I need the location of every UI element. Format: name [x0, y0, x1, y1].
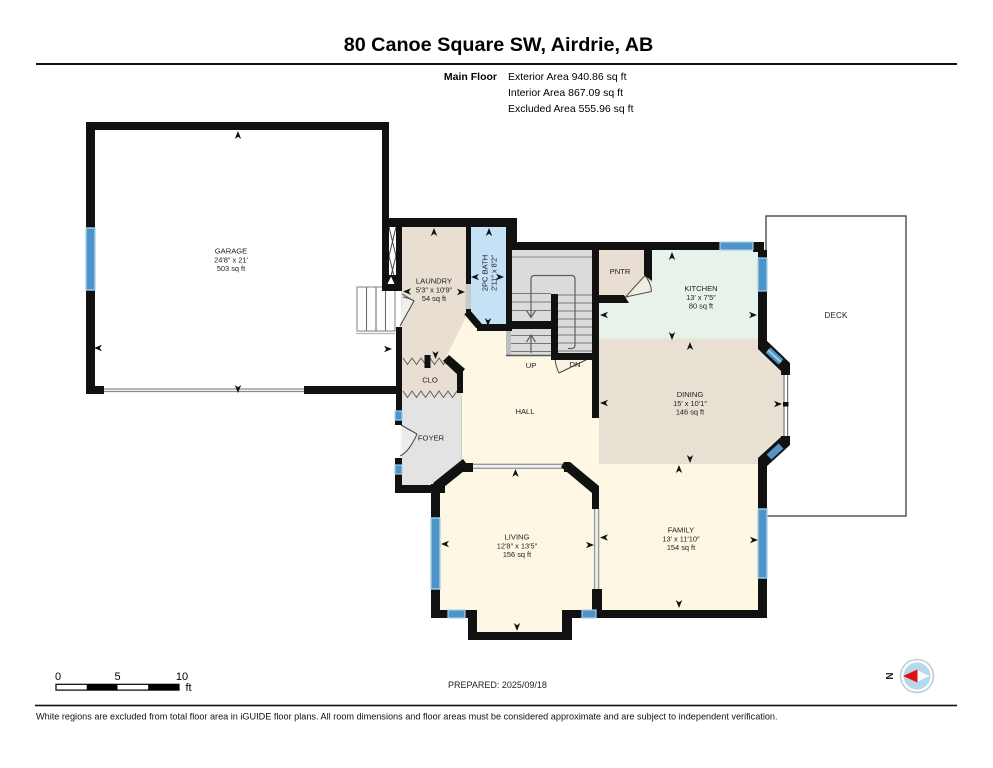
svg-text:146 sq ft: 146 sq ft: [676, 408, 704, 417]
svg-text:LIVING: LIVING: [505, 533, 530, 542]
svg-text:FOYER: FOYER: [418, 434, 445, 443]
svg-text:156 sq ft: 156 sq ft: [503, 550, 531, 559]
svg-text:KITCHEN: KITCHEN: [684, 284, 717, 293]
svg-text:GARAGE: GARAGE: [215, 247, 248, 256]
svg-text:2′11″ x 8′2″: 2′11″ x 8′2″: [490, 255, 499, 291]
svg-text:Excluded Area 555.96 sq ft: Excluded Area 555.96 sq ft: [508, 103, 634, 115]
svg-text:80 sq ft: 80 sq ft: [689, 302, 713, 311]
svg-text:Interior Area 867.09 sq ft: Interior Area 867.09 sq ft: [508, 87, 623, 99]
svg-text:PNTR: PNTR: [610, 267, 631, 276]
svg-text:DECK: DECK: [824, 311, 847, 320]
svg-text:Exterior Area 940.86 sq ft: Exterior Area 940.86 sq ft: [508, 71, 627, 83]
svg-text:80 Canoe Square SW, Airdrie, A: 80 Canoe Square SW, Airdrie, AB: [344, 34, 654, 56]
svg-text:N: N: [885, 672, 896, 679]
svg-text:FAMILY: FAMILY: [668, 526, 694, 535]
svg-text:UP: UP: [526, 361, 537, 370]
svg-text:503 sq ft: 503 sq ft: [217, 264, 245, 273]
svg-text:DN: DN: [570, 360, 581, 369]
svg-text:5: 5: [114, 671, 120, 683]
svg-text:HALL: HALL: [516, 407, 535, 416]
svg-text:White regions are excluded fro: White regions are excluded from total fl…: [36, 712, 778, 722]
svg-text:Main Floor: Main Floor: [444, 71, 497, 83]
svg-text:54 sq ft: 54 sq ft: [422, 294, 446, 303]
svg-text:0: 0: [55, 671, 61, 683]
svg-text:CLO: CLO: [422, 376, 438, 385]
svg-text:ft: ft: [186, 682, 192, 694]
svg-text:LAUNDRY: LAUNDRY: [416, 277, 452, 286]
svg-text:DINING: DINING: [677, 390, 704, 399]
svg-text:2PC BATH: 2PC BATH: [481, 255, 490, 292]
svg-text:PREPARED: 2025/09/18: PREPARED: 2025/09/18: [448, 680, 547, 690]
svg-text:154 sq ft: 154 sq ft: [667, 543, 695, 552]
